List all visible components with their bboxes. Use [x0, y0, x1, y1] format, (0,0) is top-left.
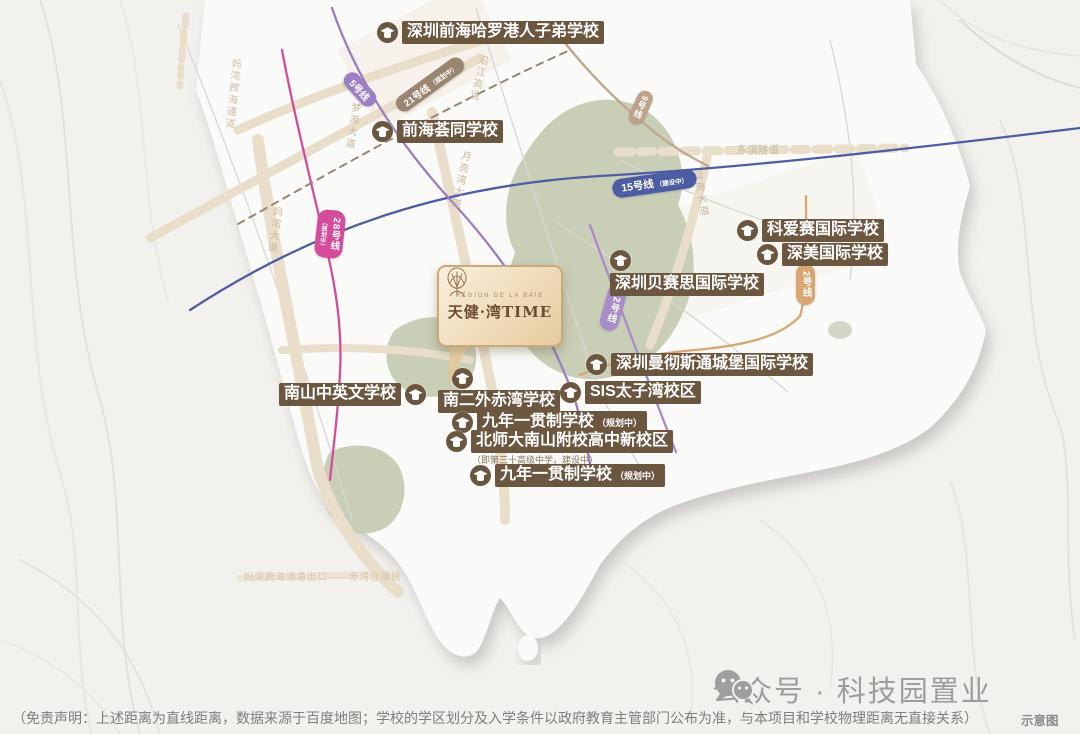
school-label: 深美国际学校 [782, 243, 888, 266]
schematic-note: 示意图 [1021, 710, 1059, 729]
school-label: 南山中英文学校 [279, 383, 401, 406]
school-marker: 科爱赛国际学校 [737, 219, 884, 242]
school-label: 前海荟同学校 [397, 120, 503, 143]
disclaimer-text: （免责声明：上述距离为直线距离，数据来源于百度地图；学校的学区划分及入学条件以政… [12, 708, 978, 728]
school-label: 九年一贯制学校（规划中） [495, 464, 665, 487]
wechat-watermark: 公众号 · 科技园置业 [712, 668, 992, 710]
road-label: 妈湾跨海通道出口——赤湾连接线 [244, 569, 402, 583]
graduation-cap-icon [377, 22, 398, 43]
project-card: RÉGION DE LA BAIE 天健·湾TIME [437, 265, 563, 347]
graduation-cap-icon [452, 368, 473, 389]
school-label: 北师大南山附校高中新校区 [471, 430, 673, 453]
school-marker: 深美国际学校 [757, 243, 888, 266]
school-label: 科爱赛国际学校 [762, 219, 884, 242]
metro-badge-line2: 2号线 [796, 264, 815, 305]
school-marker: 深圳贝赛思国际学校 [610, 250, 764, 296]
metro-badge-line28: 28号线（规划中） [314, 209, 347, 259]
graduation-cap-icon [586, 354, 607, 375]
school-label: 深圳前海哈罗港人子弟学校 [402, 21, 604, 44]
school-marker: 前海荟同学校 [372, 120, 503, 143]
school-marker: SIS太子湾校区 [560, 381, 701, 404]
school-label: 深圳曼彻斯通城堡国际学校 [611, 353, 813, 376]
school-marker: 南二外赤湾学校 [438, 368, 560, 413]
map-canvas: 妈湾跨海通道 妈湾大道 梦海大道 沿江高速 月亮湾大道 东滨隧道 南海大道 妈湾… [0, 0, 1080, 734]
school-marker: 南山中英文学校 [279, 383, 426, 406]
project-brand-cn: 天健·湾TIME [448, 301, 552, 322]
school-marker: 深圳前海哈罗港人子弟学校 [377, 21, 604, 44]
school-label: 南二外赤湾学校 [438, 390, 560, 413]
graduation-cap-icon [372, 121, 393, 142]
graduation-cap-icon [610, 250, 631, 271]
graduation-cap-icon [470, 465, 491, 486]
school-label: 深圳贝赛思国际学校 [610, 273, 764, 296]
map-base [0, 0, 1080, 734]
school-marker: 北师大南山附校高中新校区 （即第三十高级中学，建设中） [446, 430, 673, 453]
graduation-cap-icon [446, 431, 467, 452]
graduation-cap-icon [405, 384, 426, 405]
road-label: 东滨隧道 [737, 142, 779, 157]
graduation-cap-icon [737, 220, 758, 241]
school-marker: 深圳曼彻斯通城堡国际学校 [586, 353, 813, 376]
wechat-icon [712, 668, 756, 708]
project-emblem-icon [439, 267, 475, 297]
graduation-cap-icon [560, 382, 581, 403]
school-label: SIS太子湾校区 [585, 381, 701, 404]
school-marker: 九年一贯制学校（规划中） [470, 464, 665, 487]
